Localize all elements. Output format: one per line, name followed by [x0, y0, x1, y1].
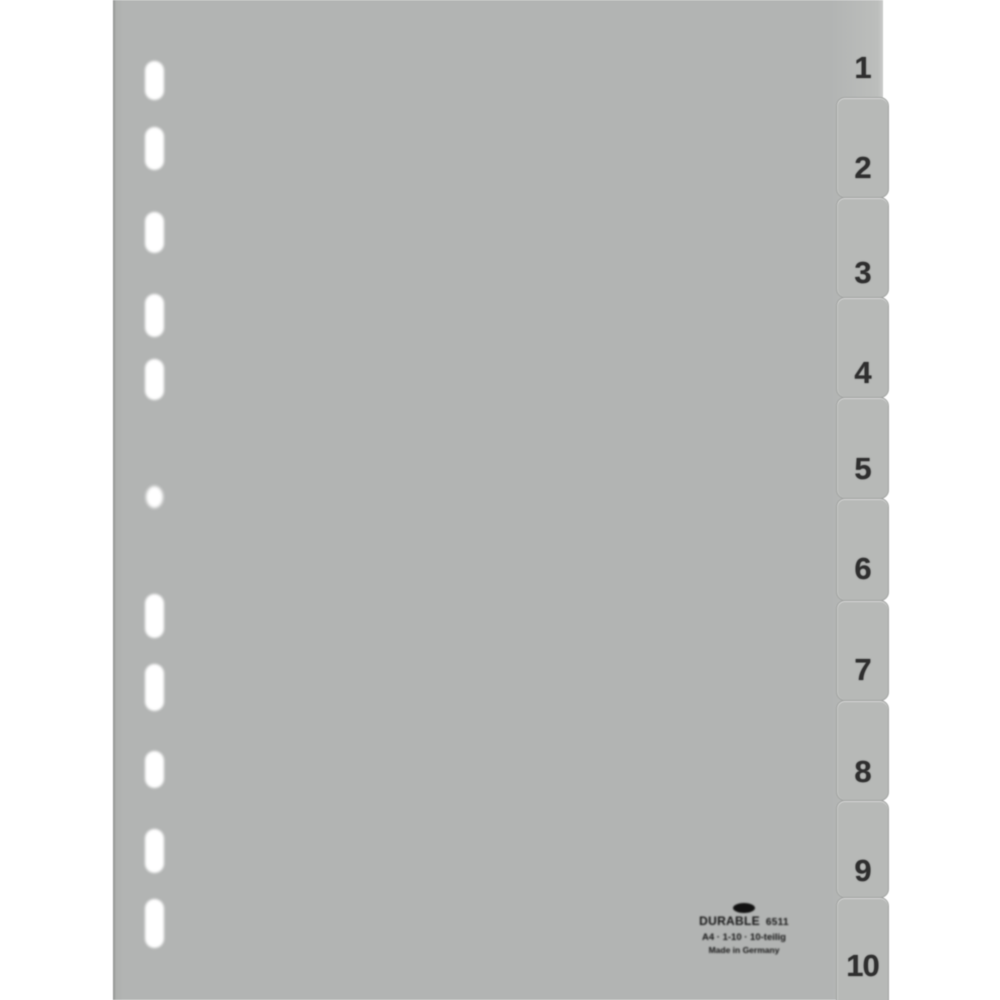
divider-photo-layer: 1 2 3 4 5 6 7 8 9 10 DURABLE6511 A4 · 1-… [0, 0, 1000, 1000]
brand-name: DURABLE [699, 914, 760, 928]
punch-hole [145, 594, 164, 638]
product-photo: 1 2 3 4 5 6 7 8 9 10 DURABLE6511 A4 · 1-… [0, 0, 1000, 1000]
brand-name-row: DURABLE6511 [686, 915, 802, 929]
punch-hole [145, 294, 164, 337]
punch-hole-small [146, 486, 163, 508]
print-line-3: Made in Germany [686, 946, 802, 955]
tab-label-3: 3 [836, 257, 889, 288]
punch-hole [145, 127, 164, 170]
brand-print: DURABLE6511 A4 · 1-10 · 10-teilig Made i… [686, 903, 802, 955]
punch-hole [145, 899, 164, 948]
punch-hole [145, 212, 164, 253]
punch-hole [145, 61, 164, 100]
durable-logo-icon [733, 903, 755, 913]
tab-label-4: 4 [836, 357, 889, 388]
punch-hole [145, 829, 164, 873]
tab-label-7: 7 [836, 654, 889, 685]
tab-label-1: 1 [836, 52, 889, 83]
punch-hole [145, 359, 164, 400]
divider-sheet [113, 0, 883, 1000]
tab-label-5: 5 [836, 453, 889, 484]
punch-hole [145, 751, 164, 788]
tab-label-6: 6 [836, 553, 889, 584]
product-code: 6511 [766, 917, 789, 928]
tab-label-10: 10 [836, 950, 889, 981]
print-line-2: A4 · 1-10 · 10-teilig [686, 933, 802, 943]
punch-hole [145, 664, 164, 711]
tab-label-9: 9 [836, 855, 889, 886]
tab-label-8: 8 [836, 756, 889, 787]
tab-label-2: 2 [836, 152, 889, 183]
